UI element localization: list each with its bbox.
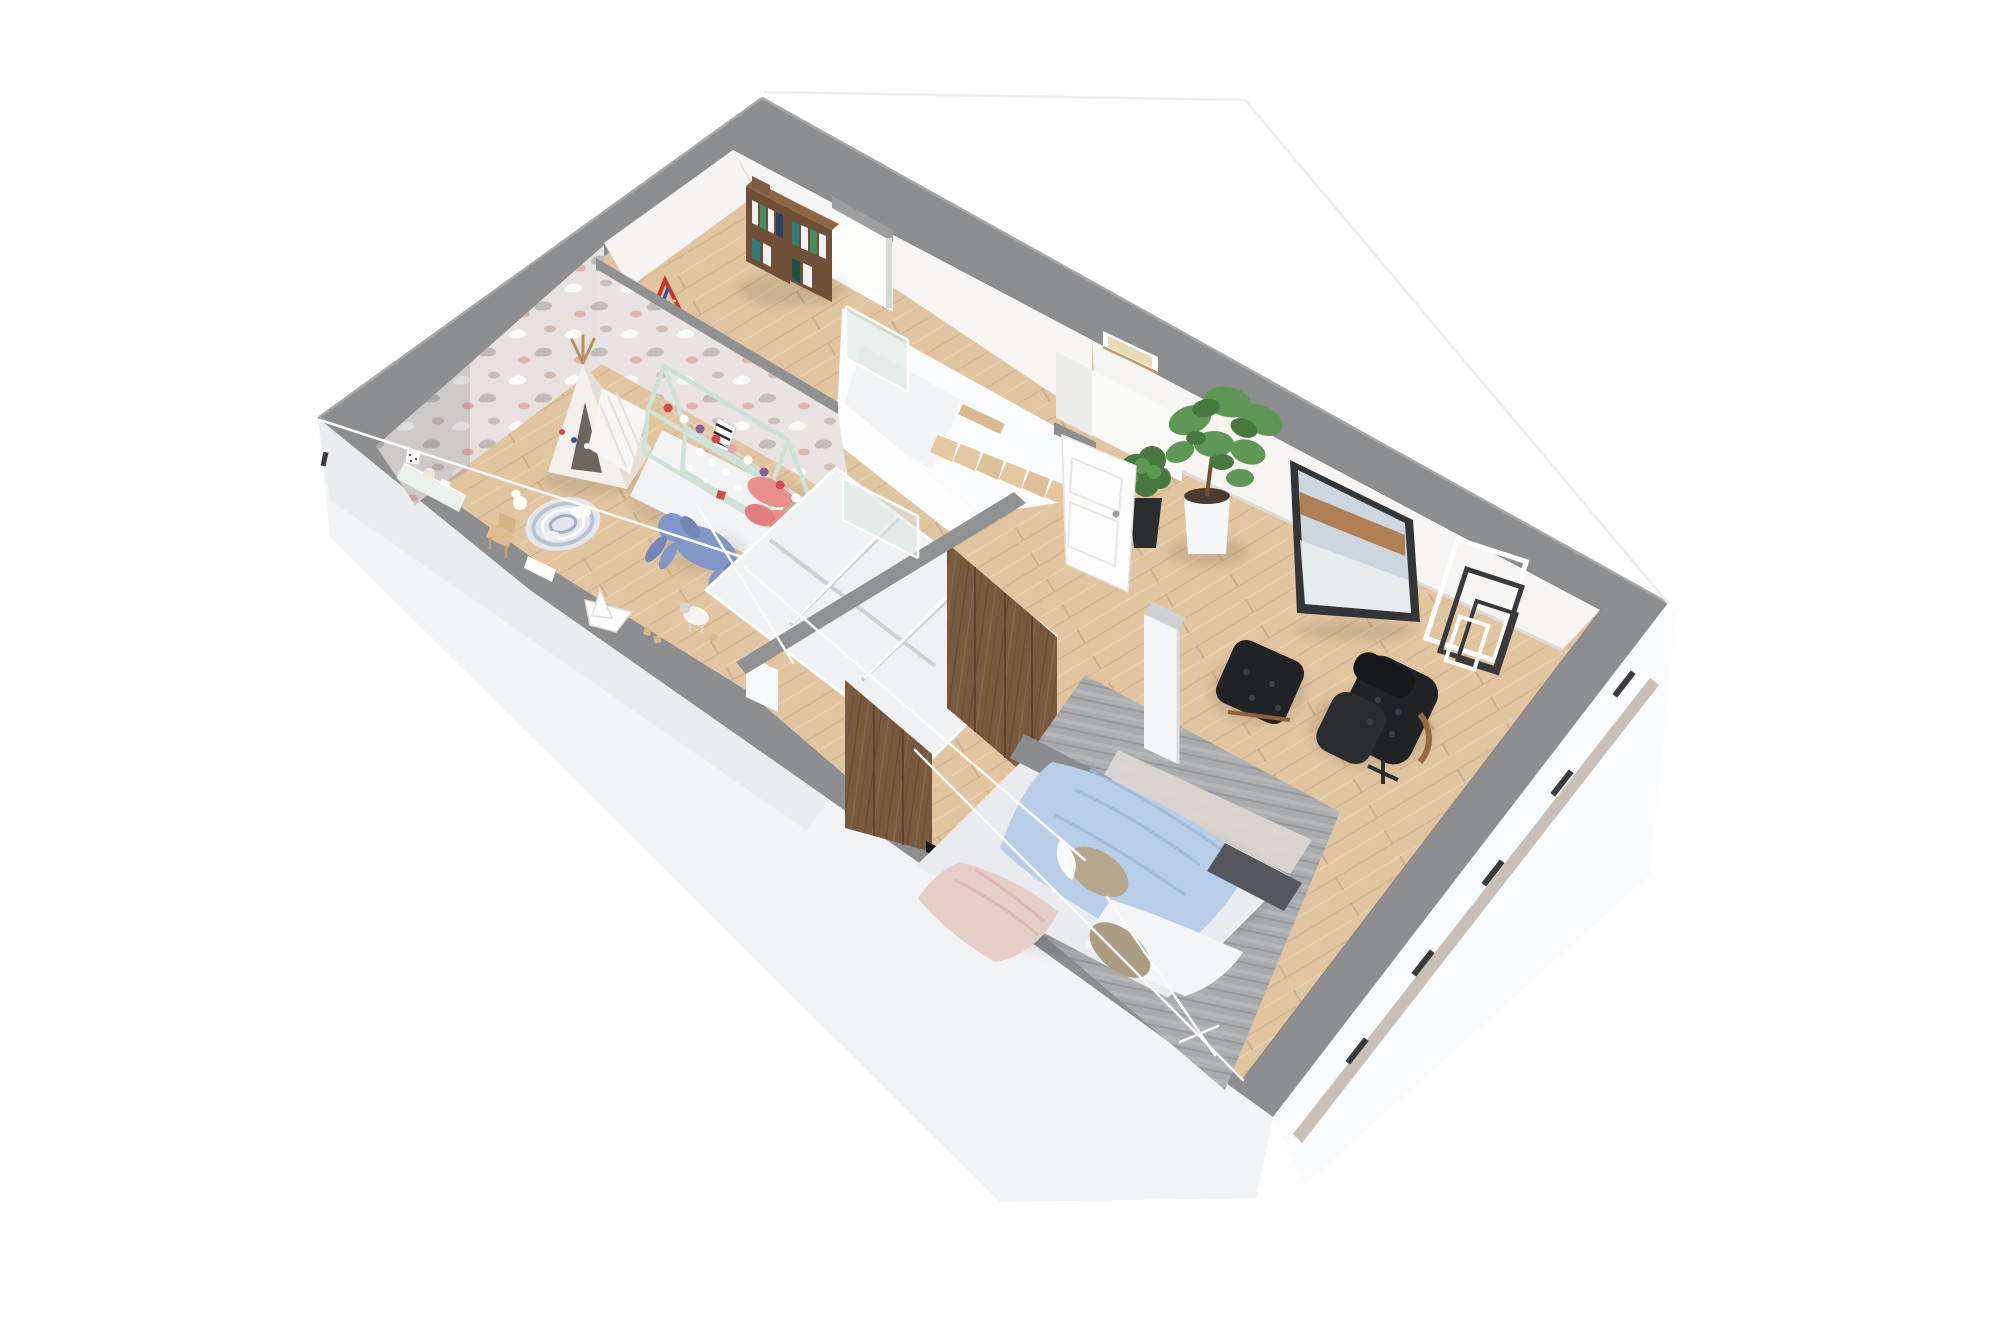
- bench-ball-toy: [423, 468, 435, 480]
- door-handle: [1113, 511, 1120, 518]
- floorplan-render: [0, 0, 2000, 1333]
- fiddle-pot: [1184, 496, 1230, 554]
- floorplan-svg: [0, 0, 2000, 1333]
- hall-stub-niche-shadow: [886, 238, 892, 308]
